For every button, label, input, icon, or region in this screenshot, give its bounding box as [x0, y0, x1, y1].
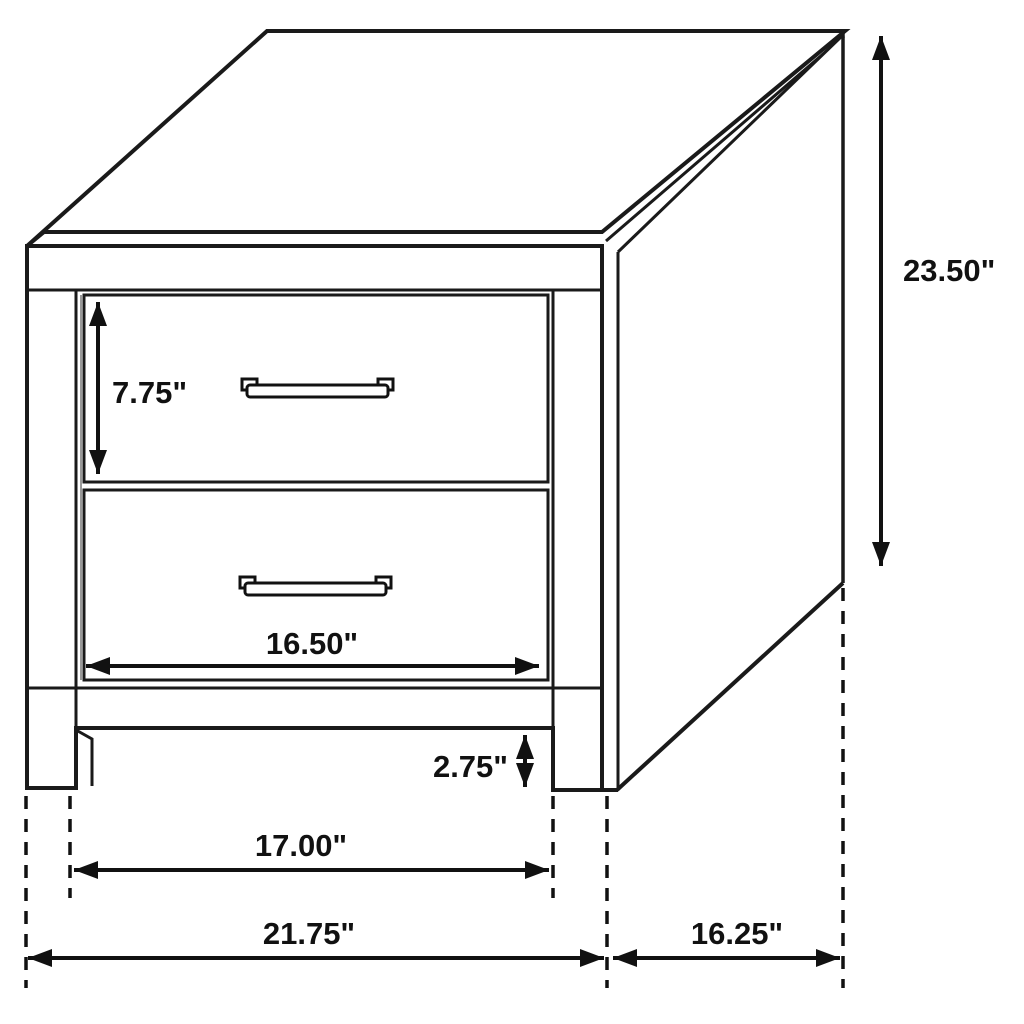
handle-bar — [245, 583, 386, 595]
handle-bar — [247, 385, 388, 397]
nightstand — [27, 31, 845, 790]
dimension-diagram: 23.50" 7.75" 16.50" 2.75" 17.00" 21.75" … — [0, 0, 1024, 1024]
dim-inner-leg-span: 17.00" — [74, 828, 549, 870]
dim-leg-height-label: 2.75" — [433, 749, 508, 784]
dim-drawer-width-label: 16.50" — [266, 626, 358, 661]
dim-inner-leg-span-label: 17.00" — [255, 828, 347, 863]
dim-leg-height: 2.75" — [433, 735, 525, 787]
dim-overall-depth: 16.25" — [613, 916, 840, 958]
nightstand-drawing: 23.50" 7.75" 16.50" 2.75" 17.00" 21.75" … — [0, 0, 1024, 1024]
dim-overall-height-label: 23.50" — [903, 253, 995, 288]
left-leg-depth-edge — [76, 730, 92, 786]
dim-overall-depth-label: 16.25" — [691, 916, 783, 951]
dim-top-drawer-height-label: 7.75" — [112, 375, 187, 410]
dim-overall-height: 23.50" — [881, 36, 995, 566]
dim-overall-width-label: 21.75" — [263, 916, 355, 951]
dim-overall-width: 21.75" — [28, 916, 604, 958]
